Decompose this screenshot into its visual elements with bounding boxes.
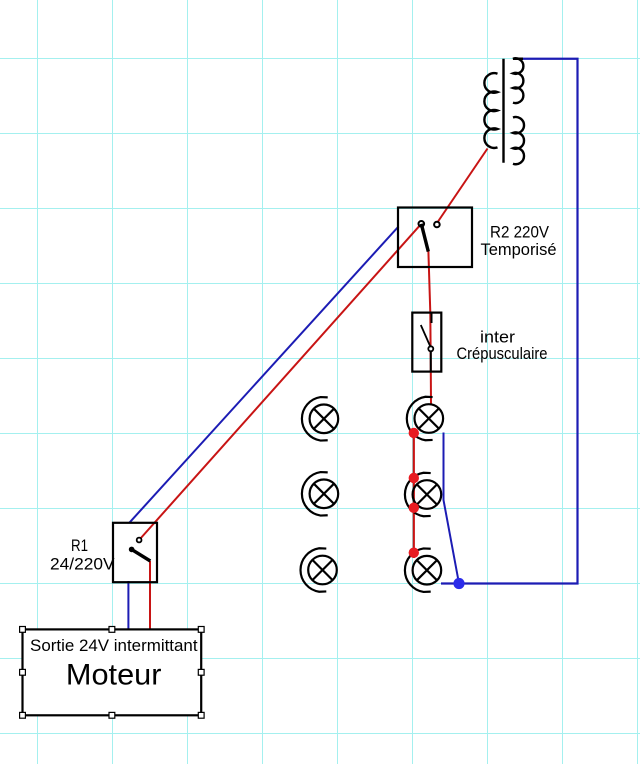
svg-text:R2 220V: R2 220V xyxy=(490,222,550,241)
svg-text:Moteur: Moteur xyxy=(66,659,162,692)
svg-text:Sortie 24V intermittant: Sortie 24V intermittant xyxy=(30,636,198,655)
svg-text:Temporisé: Temporisé xyxy=(481,240,557,259)
svg-text:Crépusculaire: Crépusculaire xyxy=(457,344,548,363)
svg-text:R1: R1 xyxy=(71,536,88,555)
svg-text:24/220V: 24/220V xyxy=(50,554,115,573)
